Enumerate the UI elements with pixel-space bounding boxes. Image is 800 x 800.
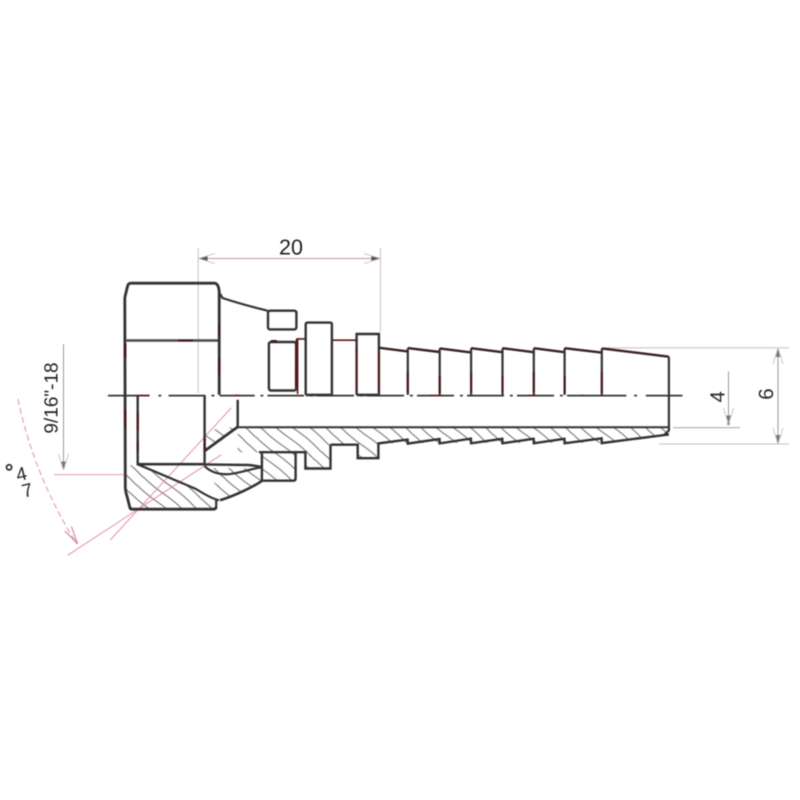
svg-text:7: 7 (20, 480, 35, 503)
svg-text:9/16"-18: 9/16"-18 (42, 362, 63, 433)
svg-text:6: 6 (755, 388, 778, 399)
svg-text:20: 20 (279, 236, 303, 260)
svg-text:4: 4 (707, 391, 730, 402)
